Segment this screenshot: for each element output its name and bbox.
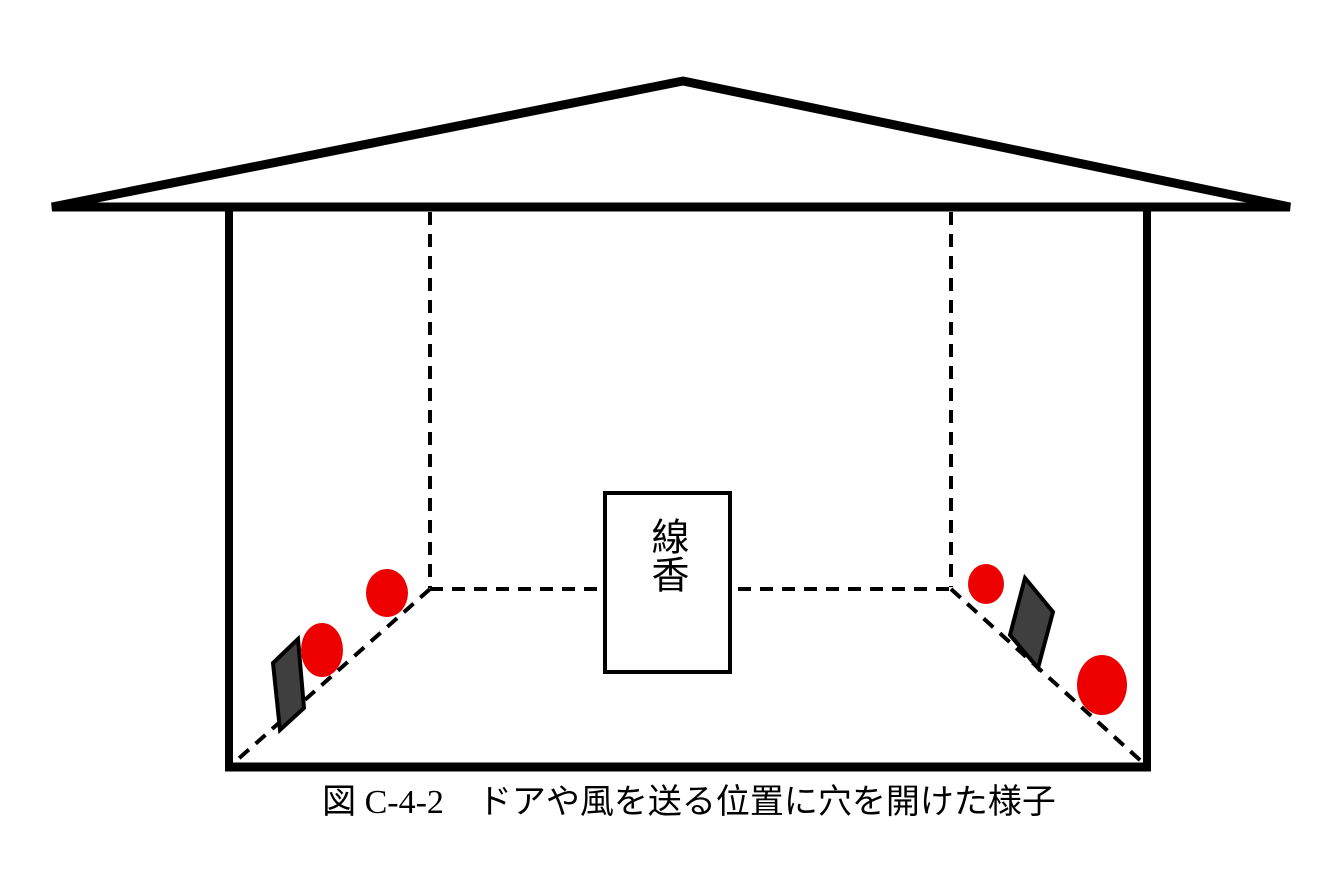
left-floor-diagonal-dashed-line (236, 589, 430, 761)
house-diagram (0, 0, 1332, 891)
door-panel-right (1010, 578, 1053, 668)
figure-caption: 図 C-4-2 ドアや風を送る位置に穴を開けた様子 (46, 783, 1332, 824)
hole-right-upper (968, 564, 1004, 604)
hole-left-upper (366, 569, 408, 617)
hole-left-lower (301, 623, 343, 677)
figure-canvas: 線香 図 C-4-2 ドアや風を送る位置に穴を開けた様子 (0, 0, 1332, 891)
hole-right-lower (1077, 655, 1127, 715)
roof-outline (52, 81, 1290, 207)
door-panel-left (273, 639, 304, 730)
incense-box-label: 線香 (646, 517, 686, 593)
